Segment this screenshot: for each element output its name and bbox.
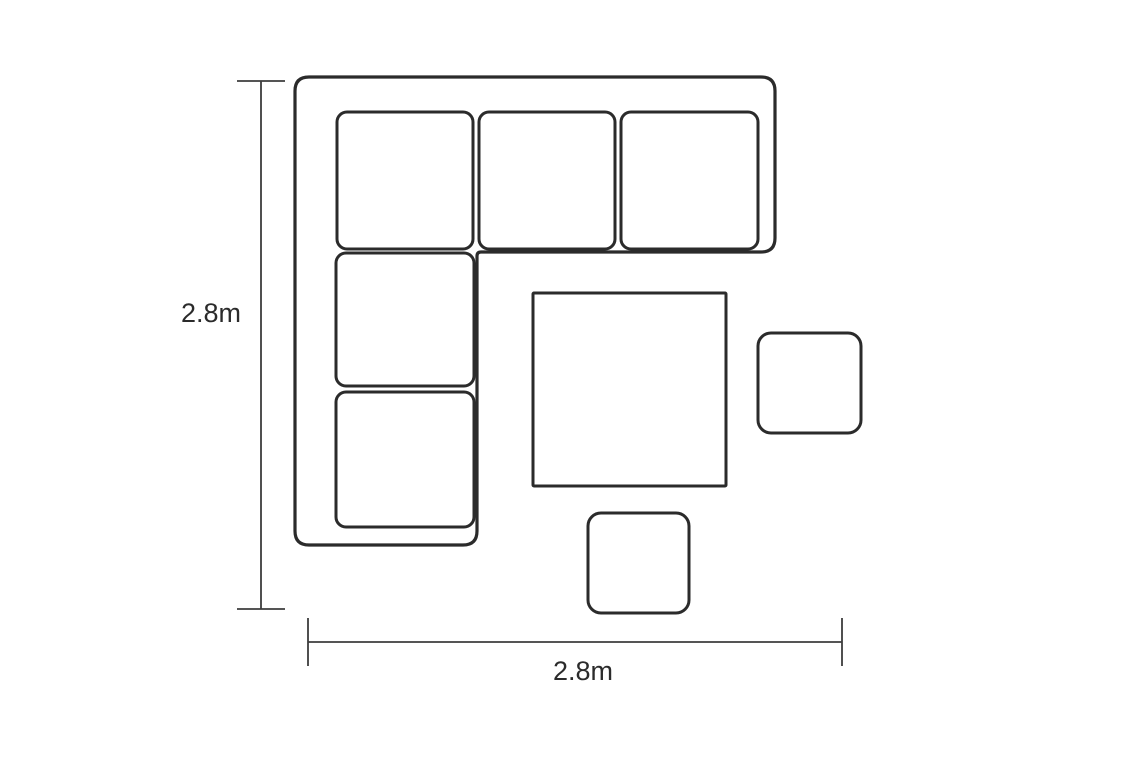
table: [533, 293, 726, 486]
stool-bottom: [588, 513, 689, 613]
seat-cushion-left-bottom: [336, 392, 474, 527]
diagram-canvas: [0, 0, 1138, 757]
vertical-dimension-label: 2.8m: [166, 298, 256, 328]
height-dimension: [237, 81, 285, 609]
horizontal-dimension-label: 2.8m: [538, 656, 628, 686]
stool-right: [758, 333, 861, 433]
seat-cushion-top-right: [621, 112, 758, 249]
seat-cushion-corner: [337, 112, 473, 249]
seat-cushion-top-middle: [479, 112, 615, 249]
seat-cushion-left-middle: [336, 253, 474, 386]
furniture-plan-diagram: 2.8m 2.8m: [0, 0, 1138, 757]
